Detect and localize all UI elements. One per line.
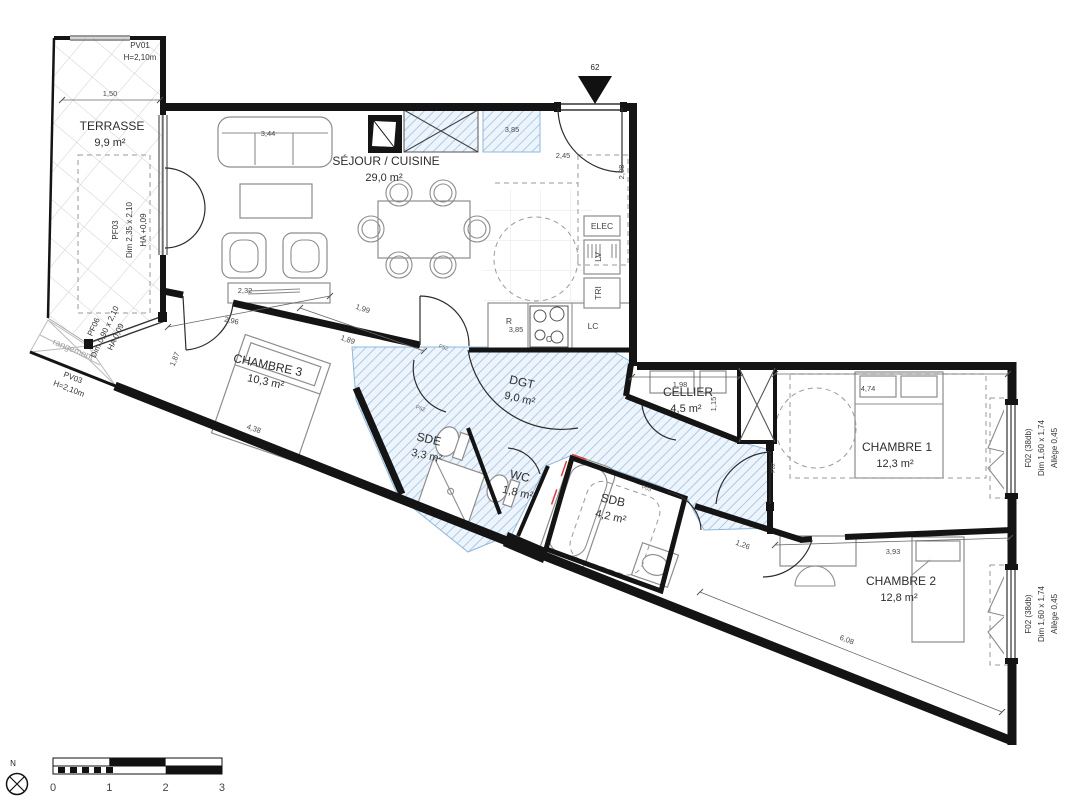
dimension-label: 6,08 (838, 633, 855, 647)
scale-tick: 3 (219, 782, 225, 794)
equipment-label: LV (593, 252, 603, 262)
north-label: N (10, 759, 16, 768)
scale-bar (53, 758, 222, 774)
pillow (916, 541, 960, 561)
dimension-label: 3,93 (886, 547, 901, 556)
room-label-chambre-1: CHAMBRE 1 (862, 440, 932, 454)
entrance-threshold (558, 104, 622, 110)
room-label-sejour-cuisine: SÉJOUR / CUISINE (332, 153, 439, 168)
window-label-pf03: Dim 2,35 x 2,10 (125, 201, 134, 258)
pillow (901, 376, 937, 397)
north-arrow: N (7, 759, 28, 795)
window-label-f02-chambre2: Allège 0,45 (1050, 593, 1059, 634)
f02-window-chambre2 (1004, 564, 1019, 664)
window-label-f02-chambre1: Allège 0,45 (1050, 427, 1059, 468)
door-tag: P02 (771, 463, 777, 473)
terrace-door (165, 168, 205, 248)
window-label-f02-chambre1: Dim 1,60 x 1,74 (1037, 419, 1046, 476)
entrance-marker: 62 (578, 63, 612, 104)
window-label-pv01: PV01 (130, 41, 150, 50)
dimension-label: 1,98 (673, 380, 688, 389)
sejour-dgt-door (420, 296, 469, 346)
room-area-chambre-2: 12,8 m² (880, 592, 918, 604)
dimension-label: 1,15 (709, 397, 718, 412)
room-label-chambre-2: CHAMBRE 2 (866, 574, 936, 588)
dimension-label: 3,85 (505, 125, 520, 134)
room-area-sejour-cuisine: 29,0 m² (365, 172, 403, 184)
floor-plan-drawing: 62 N TERRASSE9,9 m²SÉJOUR / CUISINE29,0 … (0, 0, 1090, 800)
window-label-pv01: H=2,10m (124, 53, 157, 62)
dining-table (378, 201, 470, 258)
scale-tick: 0 (50, 782, 56, 794)
equipment-label: R (506, 316, 512, 326)
entrance-door (558, 108, 622, 172)
wall-chunk (503, 532, 548, 563)
room-area-terrasse: 9,9 m² (94, 137, 126, 149)
window-label-pf03: HA +0,09 (139, 213, 148, 247)
entrance-number: 62 (591, 63, 600, 72)
coffee-table (240, 184, 312, 218)
dimension-label: 1,99 (354, 302, 371, 315)
window-label-f02-chambre2: F02 (38db) (1024, 594, 1033, 633)
dimension-label: 3,85 (509, 325, 524, 334)
dimension-label: 4,74 (861, 384, 876, 393)
dimension-label: 3,44 (261, 129, 276, 138)
kitchen-floor-tiles (483, 190, 592, 302)
scale-tick: 1 (106, 782, 112, 794)
dimension-label: 2,32 (238, 286, 253, 295)
desk-chair (795, 566, 835, 586)
dimension-label: 1,89 (339, 333, 356, 346)
room-label-terrasse: TERRASSE (80, 119, 145, 133)
dimension-label: 1,50 (103, 89, 118, 98)
chambre1-clearance-circle (776, 388, 856, 468)
dimension-label: 2,08 (617, 165, 626, 180)
window-label-f02-chambre1: F02 (38db) (1024, 428, 1033, 467)
window-label-f02-chambre2: Dim 1,60 x 1,74 (1037, 585, 1046, 642)
dimension-label: 1,26 (734, 538, 751, 552)
equipment-label: C (546, 334, 552, 344)
dimension-label: 1,87 (168, 351, 182, 368)
scale-tick: 2 (163, 782, 169, 794)
f02-window-chambre1 (1004, 399, 1019, 499)
dimension-label: 2,45 (556, 151, 571, 160)
room-area-cellier: 4,5 m² (670, 403, 702, 415)
floor-plan-page: 62 N TERRASSE9,9 m²SÉJOUR / CUISINE29,0 … (0, 0, 1090, 800)
room-area-chambre-1: 12,3 m² (876, 458, 914, 470)
entrance-arrow (578, 76, 612, 104)
equipment-label: TRI (593, 286, 603, 300)
room-label-cellier: CELLIER (663, 385, 713, 399)
desk (780, 536, 856, 566)
sofa (218, 117, 332, 167)
window-label-pf03: PF03 (111, 220, 120, 240)
equipment-label: LC (588, 321, 599, 331)
equipment-label: ELEC (591, 221, 613, 231)
